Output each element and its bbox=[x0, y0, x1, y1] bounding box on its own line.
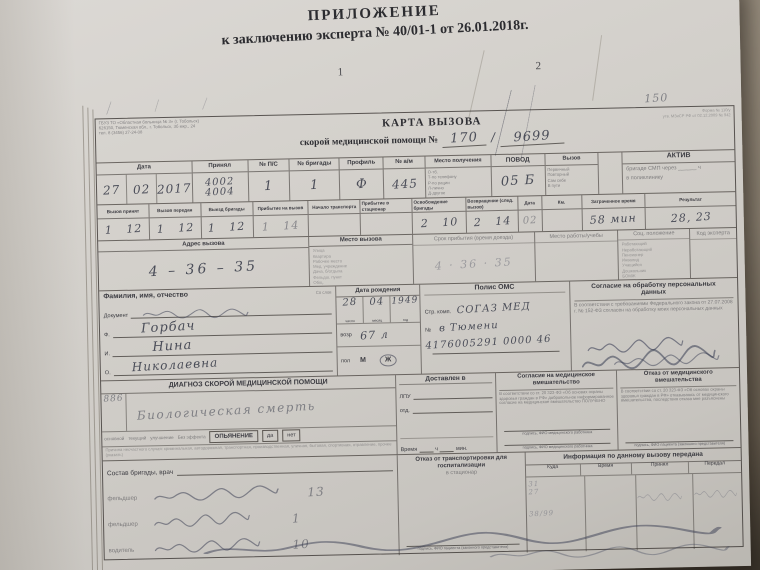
result-word: основной bbox=[104, 436, 124, 442]
car-number-value: 445 bbox=[391, 176, 418, 191]
brigade-number-cell: № бригады 1 bbox=[290, 158, 341, 200]
address-cell: Адрес вызова 4 – 36 – 35 bbox=[98, 237, 310, 290]
medical-consent-text: В соответствии со ст. 20 323-ФЗ «Об осно… bbox=[499, 389, 614, 406]
medical-refusal-text: В соответствии со ст. 20 323-ФЗ «Об осно… bbox=[621, 387, 737, 404]
call-type-option: В пути bbox=[548, 182, 561, 188]
pen-stroke bbox=[154, 99, 159, 112]
patronymic-label: О. bbox=[105, 370, 111, 376]
call-place-option: Общ. bbox=[313, 279, 323, 284]
card-subtitle: скорой медицинской помощи № bbox=[300, 135, 438, 148]
birth-day: 28 bbox=[342, 297, 357, 309]
social-status-cell: Соц. положение Работающий Неработающий П… bbox=[618, 229, 691, 279]
oms-policy-cell: Полис ОМС Стр. комп. СОГАЗ МЕД № в Тюмен… bbox=[420, 282, 571, 374]
info-col-where: Куда bbox=[526, 464, 581, 476]
povod-value: 05 Б bbox=[501, 173, 536, 190]
car-number-cell: № а/м 445 bbox=[384, 157, 427, 199]
personal-data-consent-label: Согласие на обработку персональных данны… bbox=[574, 279, 734, 301]
ps-number-value: 1 bbox=[264, 179, 274, 194]
result-cell: Результат 28, 23 bbox=[646, 192, 736, 229]
time-label: Прибытие в стационар bbox=[361, 199, 412, 214]
call-source-cell: Место получения О-тб. Т-по телефону Р-по… bbox=[425, 155, 492, 197]
crew-role: фельдшер bbox=[107, 495, 151, 503]
call-type-cell: Вызов Первичный Повторный Сам себе В пут… bbox=[545, 153, 600, 195]
crew-number: 1 bbox=[292, 511, 301, 525]
date-cell: Дата 27 02 2017 bbox=[97, 161, 194, 204]
time-cell-passed: Вызов передан 1 12 bbox=[149, 203, 202, 239]
elapsed-label: Затраченное время bbox=[582, 194, 645, 209]
page-mark-1: 1 bbox=[338, 66, 344, 78]
expert-code-cell: Код эксперта bbox=[690, 228, 737, 278]
time-label: Прибытие на вызов bbox=[253, 201, 308, 216]
brigade-number-value: 1 bbox=[310, 178, 320, 193]
povod-cell: ПОВОД 05 Б bbox=[491, 154, 546, 196]
personal-data-consent-text: В соответствии с требованиями Федерально… bbox=[574, 300, 734, 315]
org-line3: тел. 8 (3456) 27-24-08 bbox=[99, 128, 245, 136]
address-value: 4 – 36 – 35 bbox=[149, 258, 259, 280]
crew-role: фельдшер bbox=[108, 521, 152, 529]
time-value: 2 10 bbox=[420, 215, 458, 230]
diagnosis-value: Биологическая смерть bbox=[136, 398, 316, 422]
ps-number-cell: № П/С 1 bbox=[248, 159, 291, 201]
intoxication-yes: да bbox=[262, 430, 279, 442]
info-col-time: Время bbox=[581, 463, 632, 475]
time-cell-arrival: Прибытие на вызов 1 14 bbox=[253, 201, 310, 237]
info-col-passed: Передал bbox=[689, 461, 742, 473]
paper-sheet: ПРИЛОЖЕНИЕ к заключению эксперта № 40/01… bbox=[0, 0, 751, 570]
arrival-term-cell: Срок прибытия (время доезда) 4 · 36 · 35 bbox=[413, 232, 536, 284]
medical-consent-cell: Согласие на медицинское вмешательство В … bbox=[496, 371, 619, 453]
paper-crease bbox=[592, 35, 602, 101]
date-month: 02 bbox=[132, 182, 150, 197]
crew-number: 13 bbox=[307, 484, 325, 499]
birth-year-caption: год bbox=[403, 318, 408, 322]
brigade-number-label: № бригады bbox=[290, 158, 339, 171]
info-col-received: Принял bbox=[632, 462, 689, 474]
spare-cell bbox=[599, 152, 624, 193]
crew-role: водитель bbox=[109, 547, 153, 555]
elapsed-cell: Затраченное время 58 мин bbox=[582, 194, 647, 230]
time-label: Возвращение (след. вызов) bbox=[466, 197, 517, 212]
time-label: Начало транспорта bbox=[309, 200, 360, 215]
call-place-cell: Место вызова Улица Квартира Рабочее мест… bbox=[309, 235, 414, 286]
birth-year: 1949 bbox=[391, 295, 418, 306]
time-value: 1 12 bbox=[208, 220, 246, 235]
km-cell: Км. bbox=[542, 195, 583, 231]
time-cell-released: Освобождение бригады 2 10 bbox=[412, 198, 467, 234]
info-faint-entry: 27 bbox=[528, 485, 582, 496]
sex-female-circled: Ж bbox=[380, 354, 397, 366]
result-value: 28, 23 bbox=[670, 210, 712, 225]
time-cell-accepted: Вызов принят 1 12 bbox=[97, 204, 150, 240]
document-content: ПРИЛОЖЕНИЕ к заключению эксперта № 40/01… bbox=[0, 0, 760, 570]
birth-month-caption: месяц bbox=[372, 318, 382, 322]
arrival-term-value: 4 · 36 · 35 bbox=[435, 255, 514, 272]
time-label: Освобождение бригады bbox=[412, 198, 465, 213]
profile-label: Профиль bbox=[340, 157, 383, 170]
ps-number-label: № П/С bbox=[248, 159, 289, 172]
card-title-block: КАРТА ВЫЗОВА скорой медицинской помощи №… bbox=[248, 109, 617, 160]
date-year: 2017 bbox=[157, 180, 192, 196]
received-by-value2: 4004 bbox=[205, 187, 235, 199]
intoxication-no: нет bbox=[282, 429, 301, 441]
sex-male: М bbox=[360, 357, 366, 365]
ambulance-call-card: ГБУЗ ТО «Областная больница № 3» (г. Тоб… bbox=[95, 105, 744, 560]
profile-cell: Профиль Ф bbox=[340, 157, 385, 199]
form-meta-line2: утв. МЗиСР РФ от 02.12.2009 № 942 bbox=[619, 113, 731, 120]
call-source-option: Д-другое bbox=[428, 190, 445, 196]
time-delivered-label: Время bbox=[401, 446, 418, 453]
time-value: 1 14 bbox=[262, 219, 300, 234]
km-label: Км. bbox=[542, 195, 581, 210]
minutes-label: мин. bbox=[456, 445, 468, 452]
fio-note: Со слов bbox=[316, 291, 332, 296]
pen-stroke bbox=[202, 97, 208, 110]
card-number-sep: / bbox=[490, 130, 496, 144]
card-number-1: 170 bbox=[442, 130, 487, 148]
time-value: 1 12 bbox=[104, 222, 142, 237]
age-label: возр bbox=[340, 332, 352, 339]
diagnosis-block: ДИАГНОЗ СКОРОЙ МЕДИЦИНСКОЙ ПОМОЩИ 886 Би… bbox=[101, 375, 398, 460]
form-meta-block: Форма № 110/у утв. МЗиСР РФ от 02.12.200… bbox=[615, 106, 734, 151]
hours-label: ч bbox=[435, 446, 438, 452]
medical-refusal-cell: Отказ от медицинского вмешательства В со… bbox=[617, 368, 740, 450]
received-by-cell: Принял 4002 4004 bbox=[192, 160, 249, 202]
fio-cell: Фамилия, имя, отчество Со слов Документ … bbox=[99, 286, 338, 380]
pen-stroke bbox=[106, 101, 111, 115]
workplace-cell: Место работы/учебы bbox=[535, 231, 620, 282]
handwriting-scribble bbox=[693, 485, 737, 496]
appendix-header: ПРИЛОЖЕНИЕ к заключению эксперта № 40/01… bbox=[104, 0, 645, 52]
patronymic-line: О. Николаевна bbox=[105, 353, 334, 377]
surname-value: Горбач bbox=[140, 319, 195, 337]
birthdate-cell: Дата рождения 28 число 04 месяц 1949 год bbox=[336, 285, 422, 376]
time-value: 2 14 bbox=[473, 214, 511, 229]
delivered-to-cell: Доставлен в ЛПУ отд. Время ч bbox=[396, 373, 497, 454]
car-number-label: № а/м bbox=[384, 157, 425, 170]
info-faint-entry: 38/99 bbox=[528, 507, 582, 518]
time-cell-transport: Начало транспорта bbox=[309, 200, 362, 236]
aktiv-line1: бригаде СМП через ______ ч bbox=[626, 165, 701, 173]
firstname-value: Нина bbox=[152, 338, 193, 355]
birth-day-caption: число bbox=[345, 319, 355, 323]
time-cell-return: Возвращение (след. вызов) 2 14 bbox=[466, 197, 519, 233]
handwritten-note-150: 150 bbox=[644, 91, 669, 105]
birth-month: 04 bbox=[369, 296, 384, 308]
age-value: 67 л bbox=[360, 327, 389, 342]
aktiv-line2: в поликлинику bbox=[626, 175, 663, 182]
time-cell-hospital: Прибытие в стационар bbox=[361, 199, 414, 235]
medical-refusal-label: Отказ от медицинского вмешательства bbox=[620, 369, 736, 388]
date2-value: 02 bbox=[522, 215, 537, 227]
date2-label: Дата bbox=[518, 196, 541, 210]
elapsed-value: 58 мин bbox=[590, 211, 638, 227]
date2-cell: Дата 02 bbox=[518, 196, 543, 231]
diagnosis-code: 886 bbox=[103, 394, 124, 405]
result-word: Без эффекта bbox=[178, 435, 206, 441]
time-value: 1 12 bbox=[156, 221, 194, 236]
result-word: текущий bbox=[128, 436, 146, 442]
photo-of-document: ПРИЛОЖЕНИЕ к заключению эксперта № 40/01… bbox=[0, 0, 760, 570]
time-label: Вызов передан bbox=[149, 203, 200, 218]
povod-label: ПОВОД bbox=[491, 154, 544, 167]
date-day: 27 bbox=[103, 182, 121, 197]
paper-crease bbox=[468, 50, 484, 118]
call-type-label: Вызов bbox=[545, 153, 598, 166]
handwriting-scribble bbox=[141, 305, 251, 319]
intoxication-label: ОПЬЯНЕНИЕ bbox=[210, 430, 259, 443]
row-diagnosis: ДИАГНОЗ СКОРОЙ МЕДИЦИНСКОЙ ПОМОЩИ 886 Би… bbox=[101, 368, 741, 461]
handwriting-scribble bbox=[636, 488, 682, 499]
sex-label: пол bbox=[341, 358, 350, 365]
card-number-2: 9699 bbox=[500, 128, 565, 148]
time-label: Вызов принят bbox=[97, 204, 148, 219]
policy-number-value: 4176005291 0000 46 bbox=[425, 334, 552, 352]
time-cell-departure: Выезд бригады 1 12 bbox=[201, 202, 254, 238]
org-block: ГБУЗ ТО «Областная больница № 3» (г. Тоб… bbox=[96, 116, 249, 162]
result-word: улучшение bbox=[150, 435, 174, 441]
aktiv-cell: АКТИВ бригаде СМП через ______ ч в полик… bbox=[623, 150, 735, 193]
social-status-option: БОМЖ bbox=[622, 273, 635, 279]
page-mark-2: 2 bbox=[535, 60, 541, 72]
profile-value: Ф bbox=[355, 177, 368, 193]
time-label: Выезд бригады bbox=[201, 202, 252, 217]
patronymic-value: Николаевна bbox=[131, 355, 218, 374]
